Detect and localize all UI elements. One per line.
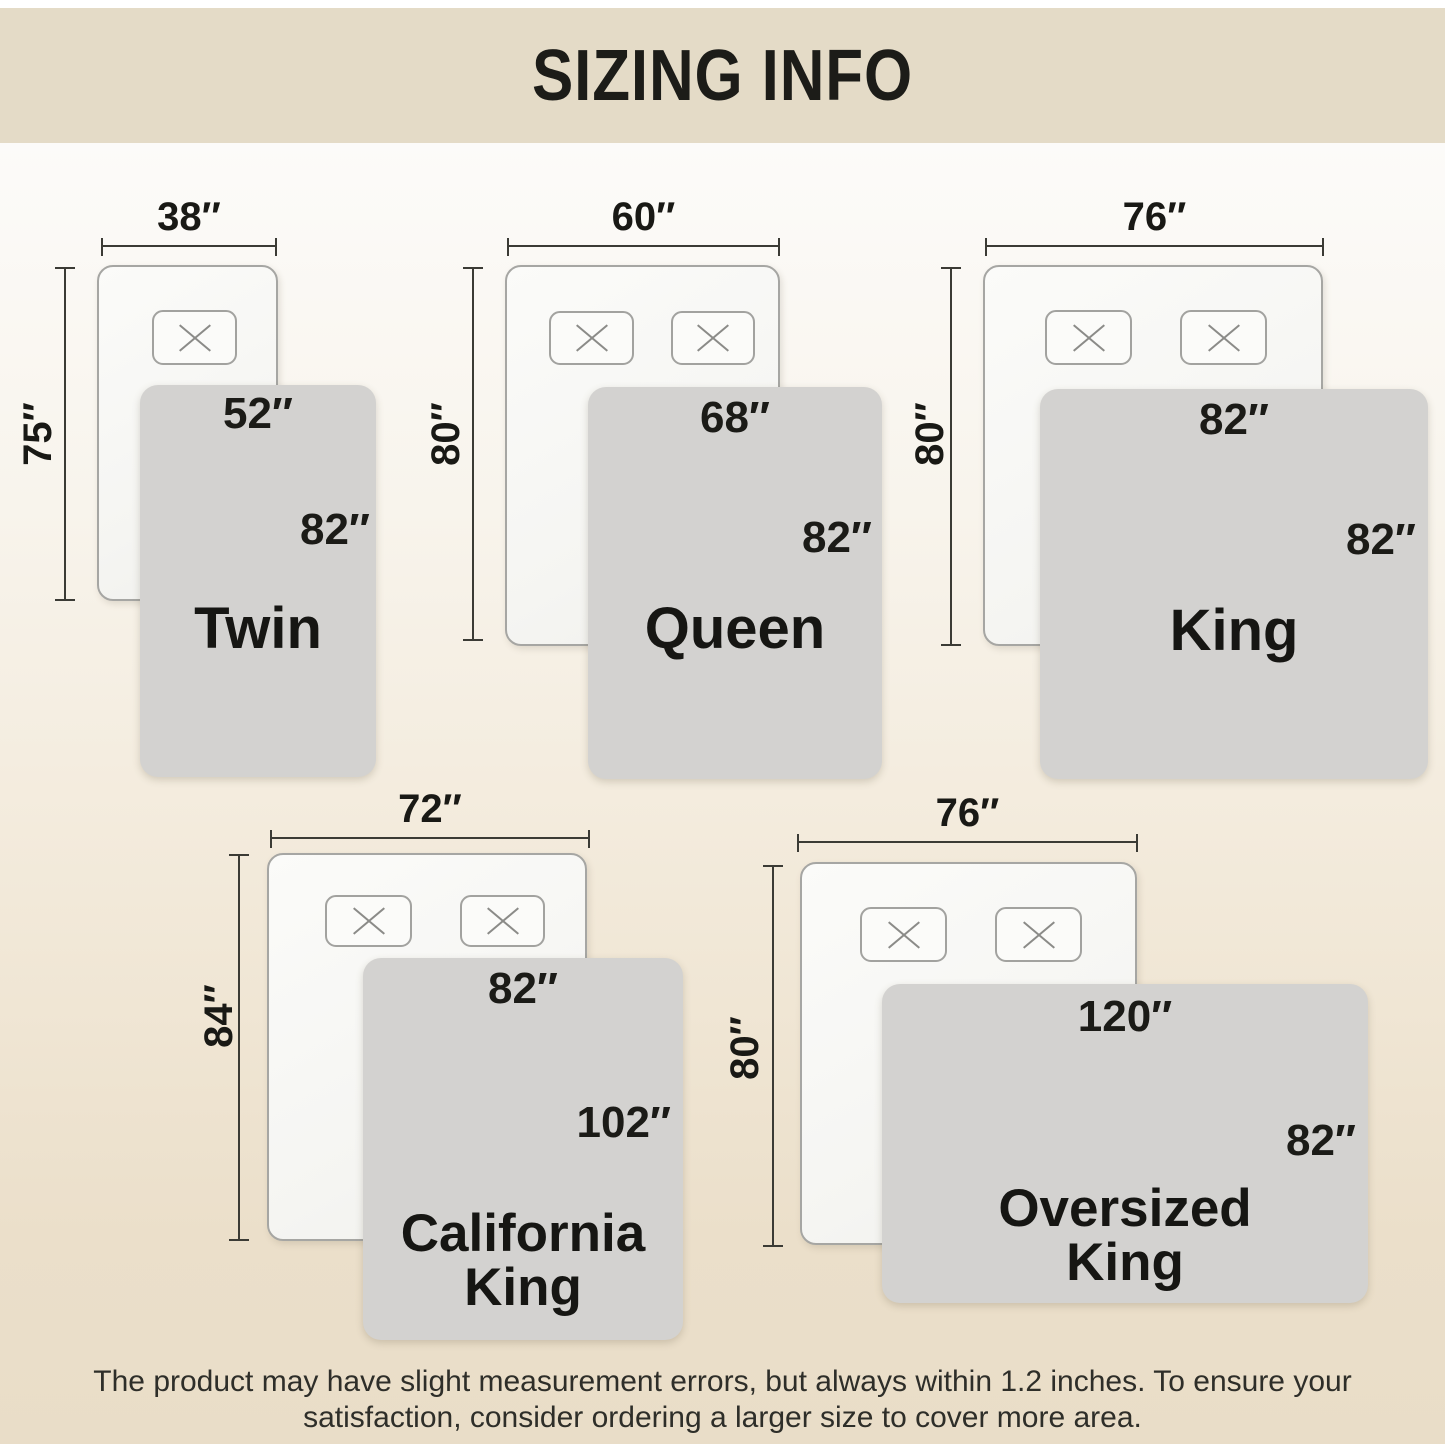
oversized-king-blanket-width-label: 120″ [882, 992, 1368, 1042]
oversized-king-length-dimension-line [772, 866, 774, 1246]
pillow [995, 907, 1082, 962]
oversized-king-blanket: 120″ 82″ Oversized King [882, 984, 1368, 1303]
sizing-info-infographic: SIZING INFO 38″ 75″ 52″ 82″ Twin 60″ 80″… [0, 0, 1445, 1444]
size-name-line2: King [882, 1236, 1368, 1290]
disclaimer-line2: satisfaction, consider ordering a larger… [0, 1400, 1445, 1436]
disclaimer-line1: The product may have slight measurement … [0, 1364, 1445, 1400]
pillow [860, 907, 947, 962]
oversized-king-bed-width-label: 76″ [936, 791, 1000, 836]
oversized-king-size-name: Oversized King [882, 1182, 1368, 1290]
oversized-king-bed-length-label: 80″ [723, 988, 767, 1108]
oversized-king-width-dimension-line: 76″ [798, 841, 1137, 843]
disclaimer-text: The product may have slight measurement … [0, 1364, 1445, 1436]
oversized-king-diagram: 76″ 80″ 120″ 82″ Oversized King [0, 0, 1445, 1444]
oversized-king-blanket-length-label: 82″ [1286, 1116, 1356, 1166]
size-name-line1: Oversized [882, 1182, 1368, 1236]
